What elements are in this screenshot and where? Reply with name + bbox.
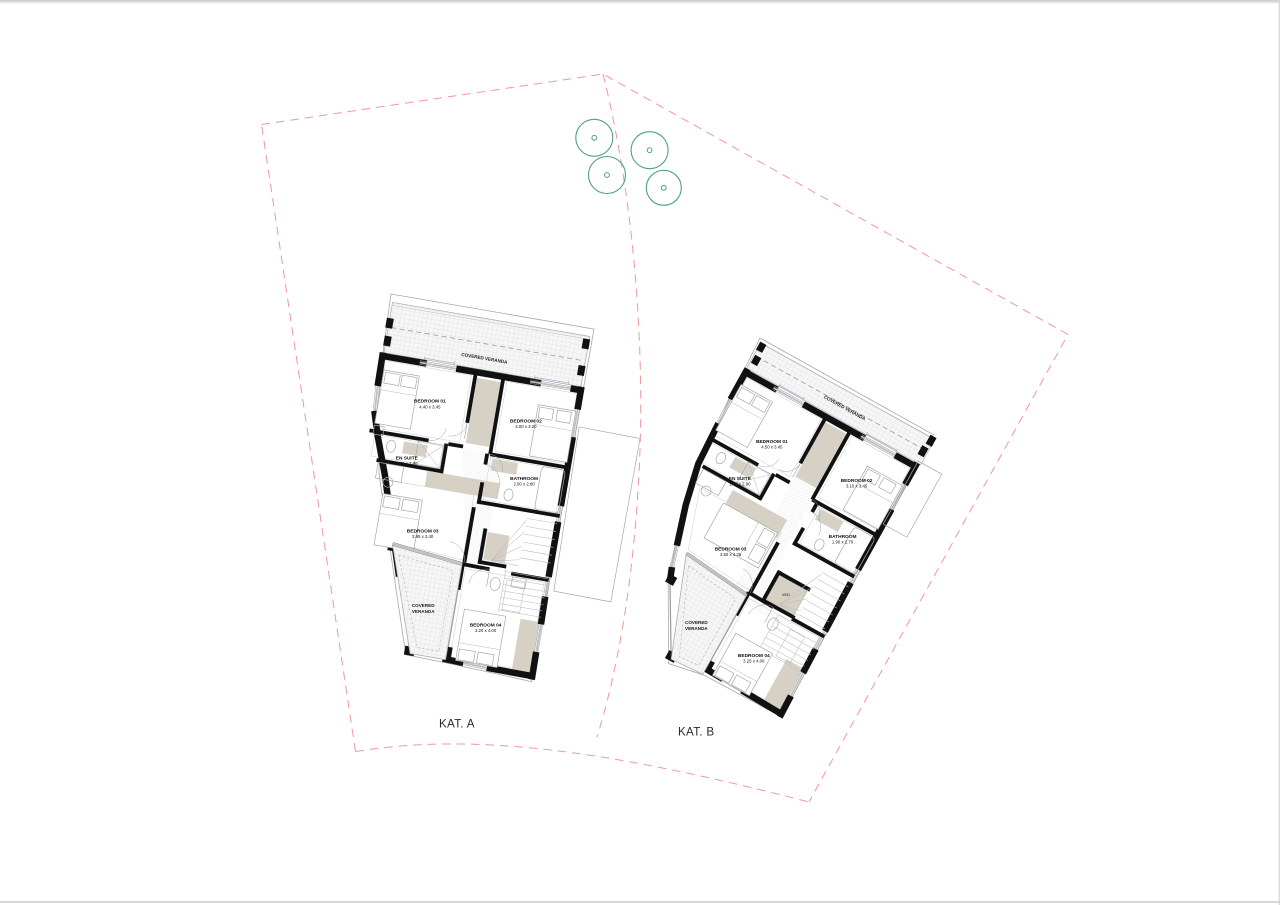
svg-text:3.20 x 4.00: 3.20 x 4.00 xyxy=(475,628,497,633)
svg-text:COVERED: COVERED xyxy=(685,620,708,625)
svg-text:1.90 x 2.70: 1.90 x 2.70 xyxy=(832,540,854,545)
svg-text:VERANDA: VERANDA xyxy=(412,609,435,614)
svg-text:1.80 x 2.80: 1.80 x 2.80 xyxy=(396,461,418,466)
svg-text:4.40 x 3.45: 4.40 x 3.45 xyxy=(419,404,441,409)
svg-text:KAT. A: KAT. A xyxy=(439,718,475,731)
svg-text:4.50 x 3.45: 4.50 x 3.45 xyxy=(761,445,783,450)
svg-text:1.80 x 2.90: 1.80 x 2.90 xyxy=(729,482,751,487)
svg-text:3.10 x 3.45: 3.10 x 3.45 xyxy=(846,483,868,488)
svg-text:2.00 x 2.80: 2.00 x 2.80 xyxy=(513,481,535,486)
svg-text:3.95 x 3.40: 3.95 x 3.40 xyxy=(412,534,434,539)
svg-text:VERANDA: VERANDA xyxy=(685,626,708,631)
svg-text:W/D: W/D xyxy=(782,592,790,597)
svg-text:KAT. B: KAT. B xyxy=(678,726,714,739)
svg-text:3.50 x 4.35: 3.50 x 4.35 xyxy=(720,552,742,557)
svg-text:3.25 x 4.00: 3.25 x 4.00 xyxy=(743,659,765,664)
svg-text:COVERED: COVERED xyxy=(412,603,435,608)
svg-text:4.00 x 3.20: 4.00 x 3.20 xyxy=(515,424,537,429)
